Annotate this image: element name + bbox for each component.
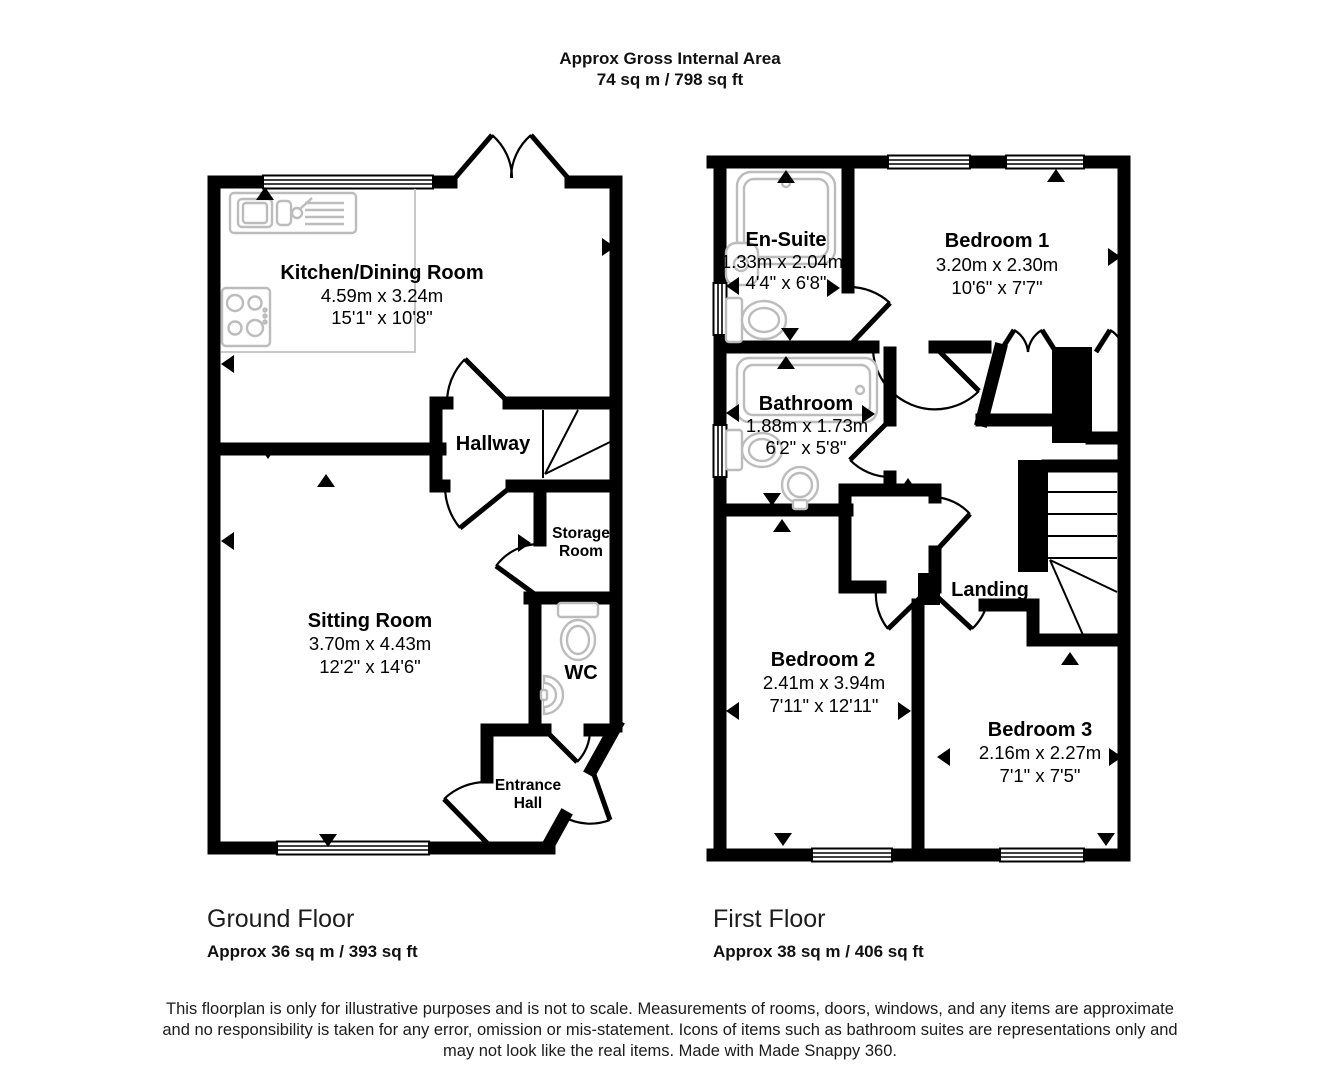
door-leaf [545,730,577,762]
direction-marker [221,532,234,550]
door-leaf [455,135,492,178]
svg-text:Kitchen/Dining Room: Kitchen/Dining Room [280,262,483,284]
direction-marker [937,748,950,766]
door-leaf [531,135,568,178]
svg-text:12'2" x 14'6": 12'2" x 14'6" [319,656,420,677]
ground-stairs [543,410,610,478]
direction-marker [781,328,799,341]
svg-text:Hall: Hall [514,795,542,812]
room-label-landing: Landing [951,579,1029,601]
ground-room-labels: Kitchen/Dining Room 4.59m x 3.24m 15'1" … [280,262,610,812]
svg-text:Storage: Storage [552,525,610,542]
hob-icon [222,288,270,346]
direction-marker [827,279,840,297]
french-doors [455,135,568,178]
door-leaf [465,359,509,403]
svg-text:7'1" x 7'5": 7'1" x 7'5" [1000,765,1081,786]
door-leaf [935,347,979,391]
svg-text:4'4" x 6'8": 4'4" x 6'8" [746,272,827,293]
svg-text:2.16m x 2.27m: 2.16m x 2.27m [979,742,1101,763]
first-doors [848,287,987,629]
room-label-bedroom2: Bedroom 2 2.41m x 3.94m 7'11" x 12'11" [763,649,885,716]
svg-text:En-Suite: En-Suite [745,229,826,251]
ground-floor-plan: Kitchen/Dining Room 4.59m x 3.24m 15'1" … [214,135,616,855]
svg-text:Bedroom 3: Bedroom 3 [988,719,1092,741]
direction-marker [518,534,531,552]
room-label-entrance-hall: Entrance Hall [495,777,562,812]
bedroom1-window [888,156,970,169]
door-leaf [935,514,970,552]
door-arc [492,135,512,178]
first-stairs [1048,492,1117,635]
ground-floor-title: Ground Floor [207,905,354,934]
room-label-sitting-room: Sitting Room 3.70m x 4.43m 12'2" x 14'6" [308,610,432,677]
kitchen-sink-icon [230,193,356,233]
svg-text:3.20m x 2.30m: 3.20m x 2.30m [936,254,1058,275]
room-label-storage-room: Storage Room [552,525,610,560]
basin-icon [541,676,563,714]
closet-door-arc [1014,330,1028,352]
svg-text:Bedroom 1: Bedroom 1 [945,230,1049,252]
bedroom3-window [1000,849,1084,862]
svg-text:2.41m x 3.94m: 2.41m x 3.94m [763,672,885,693]
direction-marker [1047,169,1065,182]
svg-text:Entrance: Entrance [495,777,562,794]
door-arc [511,135,531,178]
front-door-leaf [592,769,610,820]
room-label-kitchen-dining: Kitchen/Dining Room 4.59m x 3.24m 15'1" … [280,262,483,328]
door-arc [444,782,487,799]
svg-text:Bathroom: Bathroom [759,393,853,415]
room-label-wc: WC [564,662,597,684]
direction-marker [726,702,739,720]
closet-door-leaf [1096,330,1110,352]
room-label-bedroom3: Bedroom 3 2.16m x 2.27m 7'1" x 7'5" [979,719,1101,786]
direction-marker [774,833,792,846]
room-label-bedroom1: Bedroom 1 3.20m x 2.30m 10'6" x 7'7" [936,230,1058,298]
door-leaf [460,486,512,528]
svg-text:7'11" x 12'11": 7'11" x 12'11" [769,695,878,716]
room-label-hallway: Hallway [456,433,531,455]
disclaimer-line: and no responsibility is taken for any e… [0,1020,1340,1041]
disclaimer: This floorplan is only for illustrative … [0,999,1340,1062]
svg-text:15'1" x 10'8": 15'1" x 10'8" [331,307,432,328]
svg-text:Room: Room [559,543,603,560]
svg-text:6'2" x 5'8": 6'2" x 5'8" [766,437,847,458]
sitting-room-window [277,842,429,855]
svg-text:3.70m x 4.43m: 3.70m x 4.43m [309,633,431,654]
svg-text:Sitting Room: Sitting Room [308,610,432,632]
kitchen-window [263,176,433,189]
toilet-icon [726,298,786,342]
svg-text:4.59m x 3.24m: 4.59m x 3.24m [321,285,443,306]
svg-text:Hallway: Hallway [456,433,531,455]
shower-icon [782,467,818,509]
door-leaf [496,566,540,598]
ground-floor-area: Approx 36 sq m / 393 sq ft [207,942,418,962]
door-arc [876,590,888,629]
first-floor-plan: En-Suite 1.33m x 2.04m 4'4" x 6'8" Bedro… [713,156,1124,862]
svg-text:Landing: Landing [951,579,1029,601]
first-floor-area: Approx 38 sq m / 406 sq ft [713,942,924,962]
floorplan-canvas: Kitchen/Dining Room 4.59m x 3.24m 15'1" … [0,0,1340,1080]
closet-door-arc [1028,330,1042,352]
floorplan-page: Approx Gross Internal Area 74 sq m / 798… [0,0,1340,1080]
door-leaf [444,799,487,843]
direction-marker [317,474,335,487]
direction-marker [221,355,234,373]
bedroom2-window [812,849,892,862]
door-leaf [848,303,890,347]
svg-text:WC: WC [564,662,597,684]
disclaimer-line: This floorplan is only for illustrative … [0,999,1340,1020]
svg-text:10'6" x 7'7": 10'6" x 7'7" [951,277,1042,298]
bathroom-window [714,425,727,477]
bedroom1-window [1006,156,1084,169]
direction-marker [726,404,739,422]
direction-marker [1061,652,1079,665]
direction-marker [1097,833,1115,846]
toilet-icon [558,603,598,660]
closet-door-leaf [1042,330,1056,352]
disclaimer-line: may not look like the real items. Made w… [0,1041,1340,1062]
ensuite-window [714,283,727,335]
front-door-arc [564,817,610,824]
direction-marker [898,702,911,720]
svg-text:1.88m x 1.73m: 1.88m x 1.73m [746,415,868,436]
direction-marker [773,519,791,532]
door-arc [447,359,465,403]
first-floor-title: First Floor [713,905,826,934]
svg-text:Bedroom 2: Bedroom 2 [771,649,875,671]
svg-text:1.33m x 2.04m: 1.33m x 2.04m [721,251,843,272]
